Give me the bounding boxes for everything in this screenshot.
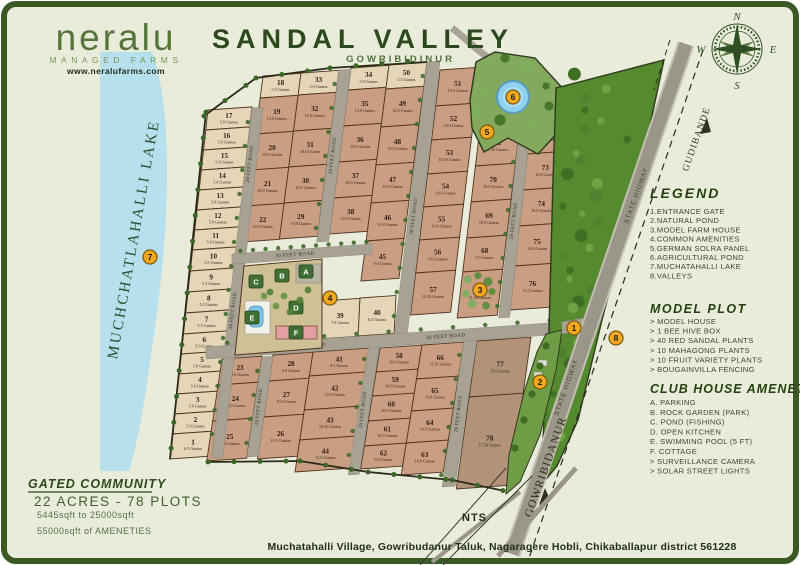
street-tree-icon <box>210 432 214 436</box>
summary-heading: GATED COMMUNITY <box>28 477 167 491</box>
legend-marker-number: 7 <box>148 252 153 262</box>
legend-marker-number: 6 <box>511 92 516 102</box>
amenity-letter: E <box>249 314 254 323</box>
street-tree-icon <box>255 369 259 373</box>
tree-icon <box>464 276 472 284</box>
summary-amenities-sqft: 55000sqft of AMENETIES <box>37 526 152 536</box>
street-tree-icon <box>409 170 413 174</box>
compass-n: N <box>732 11 741 23</box>
street-tree-icon <box>358 381 362 385</box>
plot-guntas: 10.0 Guntas <box>253 224 274 229</box>
brand-tagline: MANAGED FARMS <box>49 55 182 65</box>
brand-website: www.neralufarms.com <box>66 66 165 76</box>
legend-marker-number: 5 <box>485 127 490 137</box>
boundary-bush-icon <box>190 239 195 244</box>
street-tree-icon <box>421 74 425 78</box>
street-tree-icon <box>246 120 250 124</box>
amenity-letter: C <box>253 278 259 287</box>
panel-list-item: C. POND (FISHING) <box>650 418 725 427</box>
tree-icon <box>511 444 518 451</box>
compass-w: W <box>696 44 706 56</box>
plot-guntas: 10.50 Guntas <box>438 157 461 162</box>
plot-guntas: 10.0 Guntas <box>377 433 398 438</box>
street-tree-icon <box>508 184 512 188</box>
boundary-bush-icon <box>206 460 211 465</box>
plot-guntas: 7.0 Guntas <box>331 320 350 325</box>
summary-acres: 22 ACRES - 78 PLOTS <box>34 494 202 509</box>
street-tree-icon <box>221 336 225 340</box>
street-tree-icon <box>240 168 244 172</box>
plot-guntas: 10.0 Guntas <box>427 256 448 261</box>
tree-icon <box>568 303 579 314</box>
boundary-bush-icon <box>222 98 227 103</box>
compass-e: E <box>769 44 777 56</box>
boundary-bush-icon <box>279 72 284 77</box>
plot-guntas: 5.0 Guntas <box>359 79 378 84</box>
street-tree-icon <box>332 82 336 86</box>
amenity-letter: F <box>294 329 299 338</box>
boundary-bush-icon <box>182 316 187 321</box>
boundary-bush-icon <box>185 291 190 296</box>
plot-guntas: 5.5 Guntas <box>397 77 416 82</box>
plot-guntas: 5.0 Guntas <box>189 404 208 409</box>
street-tree-icon <box>329 106 333 110</box>
street-tree-icon <box>515 320 519 324</box>
scale-note: NTS <box>462 512 487 524</box>
street-tree-icon <box>224 312 228 316</box>
boundary-bush-icon <box>201 135 206 140</box>
compass-s: S <box>734 80 740 92</box>
tree-icon <box>468 299 476 307</box>
boundary-bush-icon <box>187 265 192 270</box>
street-tree-icon <box>326 130 330 134</box>
tree-icon <box>542 342 549 349</box>
street-tree-icon <box>418 98 422 102</box>
plot-guntas: 10.0 Guntas <box>420 427 441 432</box>
street-tree-icon <box>446 425 450 429</box>
plot-guntas: 5.0 Guntas <box>186 424 205 429</box>
tree-icon <box>566 267 573 274</box>
plot-guntas: 9.0 Guntas <box>374 457 393 462</box>
boundary-bush-icon <box>231 459 236 464</box>
street-tree-icon <box>419 327 423 331</box>
street-tree-icon <box>232 240 236 244</box>
boundary-bush-icon <box>254 76 259 81</box>
street-tree-icon <box>322 334 326 338</box>
plot-guntas: 10.0 Guntas <box>448 88 469 93</box>
boundary-bush-icon <box>443 477 448 482</box>
tree-icon <box>479 87 488 96</box>
plot-guntas: 10.0 Guntas <box>382 184 403 189</box>
plot-guntas: 5.0 Guntas <box>211 200 230 205</box>
street-tree-icon <box>248 417 252 421</box>
panel-list-item: > 10 FRUIT VARIETY PLANTS <box>650 355 762 364</box>
tree-icon <box>577 155 587 165</box>
plot-guntas: 10.0 Guntas <box>425 395 446 400</box>
street-tree-icon <box>364 240 368 244</box>
panel-list-item: F. COTTAGE <box>650 447 697 456</box>
plot-guntas: 10.0 Guntas <box>435 190 456 195</box>
tree-icon <box>580 93 590 103</box>
street-tree-icon <box>500 256 504 260</box>
plot-guntas: 9.0 Guntas <box>282 368 301 373</box>
tree-icon <box>579 211 585 217</box>
tree-icon <box>561 168 573 180</box>
panel-list-item: 3.MODEL FARM HOUSE <box>650 225 741 234</box>
street-tree-icon <box>350 429 354 433</box>
tree-icon <box>520 416 527 423</box>
plot-guntas: 10.0 Guntas <box>381 408 402 413</box>
tree-icon <box>602 84 611 93</box>
street-tree-icon <box>276 246 280 250</box>
plot-guntas: 10.0 Guntas <box>276 399 297 404</box>
panel-list-item: > 40 RED SANDAL PLANTS <box>650 336 754 345</box>
boundary-bush-icon <box>195 187 200 192</box>
plot-guntas: 10.0 Guntas <box>385 384 406 389</box>
tree-icon <box>488 288 495 295</box>
plot-guntas: 10.0 Guntas <box>387 146 408 151</box>
panel-list-item: 5.GERMAN SOLRA PANEL <box>650 244 750 253</box>
plot-guntas: 6.5 Guntas <box>368 317 387 322</box>
plot-guntas: 9.0 Guntas <box>373 261 392 266</box>
street-tree-icon <box>450 401 454 405</box>
street-tree-icon <box>406 194 410 198</box>
panel-list-item: 7.MUCHATAHALLI LAKE <box>650 262 741 271</box>
street-tree-icon <box>212 408 216 412</box>
plot-guntas: 5.5 Guntas <box>202 281 221 286</box>
plot-guntas: 5.0 Guntas <box>218 140 237 145</box>
street-tree-icon <box>354 332 358 336</box>
plot-guntas: 10.0 Guntas <box>305 113 326 118</box>
tree-icon <box>462 290 470 298</box>
plot-guntas: 5.0 Guntas <box>207 240 226 245</box>
boundary-bush-icon <box>328 66 333 71</box>
plot-guntas: 10.0 Guntas <box>262 152 283 157</box>
model-plot-heading: MODEL PLOT <box>650 302 747 316</box>
legend-marker-number: 8 <box>614 333 619 343</box>
tree-icon <box>550 391 556 397</box>
street-tree-icon <box>263 247 267 251</box>
panel-list-item: > MODEL HOUSE <box>650 317 716 326</box>
legend-marker-number: 2 <box>538 377 543 387</box>
tree-icon <box>594 219 603 228</box>
street-tree-icon <box>503 232 507 236</box>
tree-icon <box>297 297 304 304</box>
street-tree-icon <box>218 360 222 364</box>
amenities-area: CBADEF <box>235 259 322 355</box>
boundary-bush-icon <box>323 463 328 468</box>
boundary-bush-icon <box>283 459 288 464</box>
site-plan-canvas: MUCHCHATLAHALLI LAKE 175.0 Guntas165.0 G… <box>0 0 800 565</box>
tree-icon <box>471 106 482 117</box>
page-subtitle: GOWRIBIDINUR <box>346 54 455 65</box>
footer-address: Muchatahalli Village, Gowribudanur Taluk… <box>267 541 736 553</box>
street-tree-icon <box>225 341 229 345</box>
tree-icon <box>568 68 581 81</box>
plot-guntas: 12.20 Guntas <box>422 294 445 299</box>
tree-icon <box>544 101 553 110</box>
tree-icon <box>575 229 588 242</box>
street-tree-icon <box>386 329 390 333</box>
street-tree-icon <box>317 202 321 206</box>
street-tree-icon <box>412 146 416 150</box>
panel-list-item: 4.COMMON AMENITIES <box>650 235 740 244</box>
tree-icon <box>581 107 588 114</box>
plot-guntas: 10.0 Guntas <box>531 208 552 213</box>
boundary-bush-icon <box>193 213 198 218</box>
amenity-letter: B <box>279 272 285 281</box>
tree-icon <box>281 293 288 300</box>
street-tree-icon <box>403 218 407 222</box>
street-tree-icon <box>498 280 502 284</box>
club-house-list: A. PARKINGB. ROCK GARDEN (PARK)C. POND (… <box>650 398 756 476</box>
plot-guntas: 10.0 Guntas <box>483 184 504 189</box>
brand-logo: neralu <box>56 17 177 58</box>
boundary-bush-icon <box>177 368 182 373</box>
street-tree-icon <box>506 208 510 212</box>
tree-icon <box>623 136 631 144</box>
plot-guntas: 5.0 Guntas <box>193 364 212 369</box>
tree-icon <box>521 60 532 71</box>
amenity-letter: D <box>293 304 299 313</box>
boundary-bush-icon <box>305 69 310 74</box>
boundary-bush-icon <box>169 446 174 451</box>
plot-guntas: 10.0 Guntas <box>300 149 321 154</box>
plot-guntas: 13.0 Guntas <box>270 438 291 443</box>
street-tree-icon <box>400 242 404 246</box>
amenity-letter: A <box>303 268 309 277</box>
tree-icon <box>566 276 572 282</box>
boundary-bush-icon <box>204 110 209 115</box>
plot-guntas: 10.50 Guntas <box>319 424 342 429</box>
plot-guntas: 5.0 Guntas <box>191 384 210 389</box>
street-tree-icon <box>229 264 233 268</box>
tree-icon <box>287 309 294 316</box>
plot-guntas: 10.0 Guntas <box>341 216 362 221</box>
page-title: SANDAL VALLEY <box>212 24 514 54</box>
plot-guntas: 10.0 Guntas <box>257 188 278 193</box>
boundary-bush-icon <box>198 161 203 166</box>
street-tree-icon <box>251 248 255 252</box>
boundary-bush-icon <box>475 483 480 488</box>
legend-marker-number: 4 <box>328 293 333 303</box>
plot-guntas: 6.5 Guntas <box>184 446 203 451</box>
street-tree-icon <box>326 242 330 246</box>
street-tree-icon <box>314 226 318 230</box>
plot-guntas: 11.0 Guntas <box>315 455 335 460</box>
plot-guntas: 10.0 Guntas <box>291 221 312 226</box>
boundary-bush-icon <box>179 342 184 347</box>
plot-guntas: 25.0 Guntas <box>490 368 511 373</box>
street-tree-icon <box>226 288 230 292</box>
street-tree-icon <box>354 405 358 409</box>
panel-list-item: > SOLAR STREET LIGHTS <box>650 467 750 476</box>
panel-list-item: 2.NATURAL POND <box>650 216 719 225</box>
panel-list-item: D. OPEN KITCHEN <box>650 427 721 436</box>
boundary-bush-icon <box>500 488 505 493</box>
boundary-bush-icon <box>450 478 455 483</box>
street-tree-icon <box>323 154 327 158</box>
plot-guntas: 13.5 Guntas <box>522 288 543 293</box>
street-tree-icon <box>495 304 499 308</box>
panel-list-item: A. PARKING <box>650 398 696 407</box>
street-tree-icon <box>392 314 396 318</box>
street-tree-icon <box>243 144 247 148</box>
tree-icon <box>559 203 566 210</box>
tree-icon <box>560 253 567 260</box>
street-tree-icon <box>352 241 356 245</box>
panel-list-item: 1.ENTRANCE GATE <box>650 207 725 216</box>
street-tree-icon <box>457 353 461 357</box>
street-tree-icon <box>347 453 351 457</box>
plot-guntas: 10.0 Guntas <box>350 144 371 149</box>
plot-guntas: 10.0 Guntas <box>377 222 398 227</box>
boundary-bush-icon <box>417 474 422 479</box>
panel-list-item: 8.VALLEYS <box>650 271 692 280</box>
tree-icon <box>580 124 590 134</box>
plot-guntas: 10.0 Guntas <box>392 108 413 113</box>
street-tree-icon <box>439 473 443 477</box>
tree-icon <box>526 118 533 125</box>
tree-icon <box>482 302 490 310</box>
tree-icon <box>484 58 491 65</box>
street-tree-icon <box>395 290 399 294</box>
plot-guntas: 5.0 Guntas <box>220 120 239 125</box>
plot-guntas: 5.0 Guntas <box>209 220 228 225</box>
street-tree-icon <box>301 244 305 248</box>
panel-list-item: B. ROCK GARDEN (PARK) <box>650 408 750 417</box>
legend-marker-number: 1 <box>572 323 577 333</box>
plot-guntas: 9.5 Guntas <box>476 255 495 260</box>
tree-icon <box>273 303 280 310</box>
plot-guntas: 10.0 Guntas <box>389 360 410 365</box>
panel-list-item: E. SWIMMING POOL (5 FT) <box>650 437 753 446</box>
plot-guntas: 10.0 Guntas <box>267 116 288 121</box>
street-tree-icon <box>454 377 458 381</box>
boundary-bush-icon <box>391 472 396 477</box>
boundary-bush-icon <box>243 83 248 88</box>
tree-icon <box>592 178 603 189</box>
plot-guntas: 10.0 Guntas <box>295 185 316 190</box>
street-tree-icon <box>443 449 447 453</box>
street-tree-icon <box>511 160 515 164</box>
street-tree-icon <box>362 357 366 361</box>
plot-guntas: 10.0 Guntas <box>355 108 376 113</box>
boundary-bush-icon <box>174 394 179 399</box>
plot-guntas: 12.50 Guntas <box>429 362 452 367</box>
plot-guntas: 5.5 Guntas <box>200 302 219 307</box>
tree-icon <box>589 190 601 202</box>
street-tree-icon <box>451 325 455 329</box>
plot-guntas: 5.5 Guntas <box>197 323 216 328</box>
panel-list-item: > 1 BEE HIVE BOX <box>650 327 721 336</box>
plot-guntas: 5.0 Guntas <box>215 160 234 165</box>
tree-icon <box>585 244 593 252</box>
boundary-bush-icon <box>349 467 354 472</box>
panel-list-item: > BOUGAINVILLA FENCING <box>650 365 755 374</box>
plot-guntas: 5.5 Guntas <box>271 87 290 92</box>
street-tree-icon <box>235 216 239 220</box>
legend-heading: LEGEND <box>650 185 720 201</box>
tree-icon <box>267 289 274 296</box>
street-tree-icon <box>289 245 293 249</box>
club-house-heading: CLUB HOUSE AMENETIES <box>650 382 800 396</box>
plot-guntas: 12.0 Guntas <box>325 392 346 397</box>
plot-guntas: 10.0 Guntas <box>431 223 452 228</box>
street-tree-icon <box>320 178 324 182</box>
street-tree-icon <box>397 266 401 270</box>
tree-icon <box>500 53 509 62</box>
tree-icon <box>528 390 535 397</box>
boundary-bush-icon <box>257 459 262 464</box>
tree-icon <box>494 114 505 125</box>
plot-guntas: 10.0 Guntas <box>415 459 436 464</box>
brand-block: neralu MANAGED FARMS www.neralufarms.com <box>49 17 182 76</box>
plot-guntas: 5.0 Guntas <box>213 180 232 185</box>
boundary-bush-icon <box>171 420 176 425</box>
plot-guntas: 5.5 Guntas <box>204 260 223 265</box>
boundary-bush-icon <box>298 459 303 464</box>
street-tree-icon <box>483 323 487 327</box>
street-tree-icon <box>415 122 419 126</box>
panel-list-item: > 10 MAHAGONG PLANTS <box>650 346 750 355</box>
street-tree-icon <box>244 441 248 445</box>
tree-icon <box>597 117 604 124</box>
tree-icon <box>305 287 312 294</box>
tree-icon <box>474 272 481 279</box>
street-tree-icon <box>339 241 343 245</box>
street-tree-icon <box>238 249 242 253</box>
plot-guntas: 10.0 Guntas <box>345 180 366 185</box>
tree-icon <box>542 82 549 89</box>
panel-list-item: > SURVEILLANCE CAMERA <box>650 457 756 466</box>
tree-icon <box>261 293 268 300</box>
panel-list-item: 6.AGRICULTURAL POND <box>650 253 744 262</box>
plot-guntas: 10.0 Guntas <box>479 220 500 225</box>
plot-guntas: 9.0 Guntas <box>231 372 250 377</box>
street-tree-icon <box>237 192 241 196</box>
plot-guntas: 14.0 Guntas <box>527 246 548 251</box>
street-tree-icon <box>215 384 219 388</box>
boundary-bush-icon <box>366 470 371 475</box>
plot-guntas: 5.0 Guntas <box>309 84 328 89</box>
tree-icon <box>536 362 543 369</box>
street-tree-icon <box>252 393 256 397</box>
legend-marker-number: 3 <box>478 285 483 295</box>
plot-guntas: 8.5 Guntas <box>330 363 349 368</box>
summary-sqft-range: 5445sqft to 25000sqft <box>37 510 134 520</box>
plot-guntas: 10.0 Guntas <box>444 123 465 128</box>
plot-guntas: 17.50 Guntas <box>479 442 502 447</box>
street-tree-icon <box>314 243 318 247</box>
